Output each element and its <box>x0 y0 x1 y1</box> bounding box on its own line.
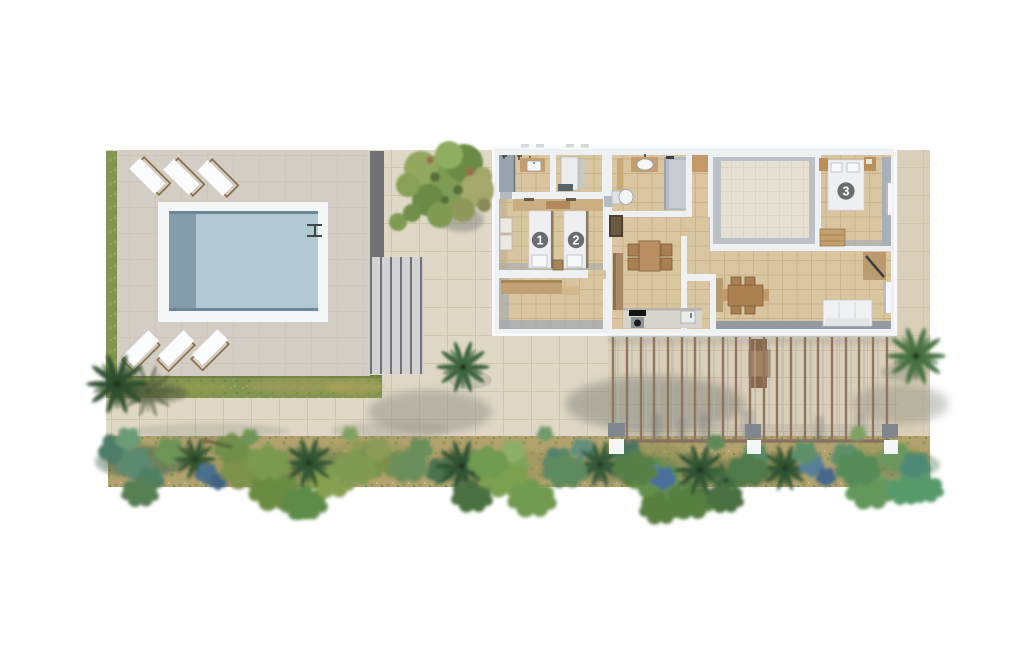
svg-text:2: 2 <box>573 234 580 248</box>
svg-text:1: 1 <box>537 234 544 248</box>
svg-text:3: 3 <box>843 185 850 199</box>
